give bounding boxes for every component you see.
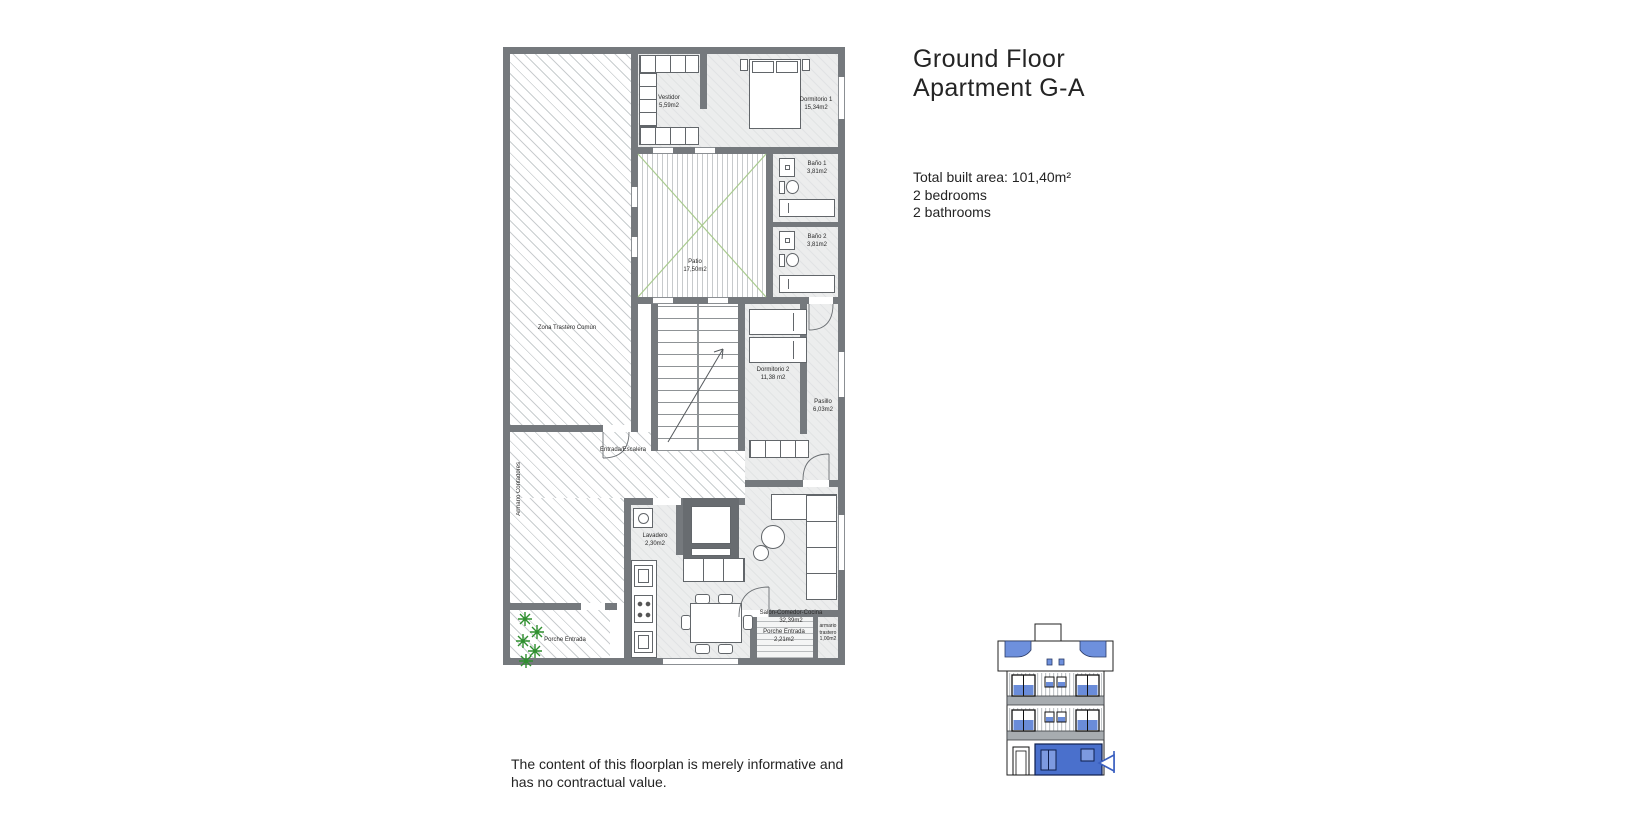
stairs-rail [697, 304, 699, 451]
sink-basin [785, 165, 790, 170]
kitchen-sink-basin [638, 569, 649, 583]
sofa-icon [771, 494, 807, 520]
wall [503, 47, 510, 665]
room-label-porche-der: Porche Entrada2,21m2 [763, 629, 805, 645]
room-label-pasillo: Pasillo6,03m2 [813, 399, 833, 415]
window [631, 237, 638, 257]
page-title: Ground Floor Apartment G-A [913, 45, 1085, 103]
pillow-icon [752, 61, 774, 73]
title-line-1: Ground Floor [913, 45, 1085, 74]
window [663, 658, 738, 665]
sink-basin [785, 238, 790, 243]
toilet-tank-icon [779, 254, 785, 267]
stove-icon [634, 595, 653, 623]
apartment-specs: Total built area: 101,40m² 2 bedrooms 2 … [913, 169, 1071, 222]
door-opening [603, 425, 631, 432]
room-label-lavadero: Lavadero2,30m2 [642, 533, 667, 549]
wall [738, 304, 745, 451]
elevation-floor-1 [1007, 708, 1104, 740]
nightstand-icon [802, 59, 810, 71]
elevator-cab [691, 506, 731, 544]
bathtub-icon [779, 199, 835, 217]
toilet-icon [786, 180, 799, 194]
bed-pillow [753, 341, 794, 359]
window [838, 352, 845, 397]
wall [700, 54, 707, 109]
zone-trastero-comun [510, 54, 631, 425]
room-label-armario-contadores: Armario Contadores [516, 462, 522, 516]
disclaimer-line-2: has no contractual value. [511, 773, 843, 791]
wall [773, 222, 845, 227]
wardrobe-icon [639, 55, 699, 73]
sink-icon [779, 231, 795, 250]
window [838, 515, 845, 570]
wall [651, 304, 658, 451]
elevation-ground-floor-highlight [1013, 744, 1102, 775]
title-line-2: Apartment G-A [913, 74, 1085, 103]
floorplan-page: { "header": { "title": ["Ground Floor", … [0, 0, 1638, 840]
window [653, 297, 673, 304]
kitchen-sink-icon [634, 565, 653, 587]
wardrobe-icon [749, 440, 809, 458]
wall [766, 154, 773, 304]
dining-table-icon [690, 603, 742, 643]
room-label-armario-trastero: armario trastero1,00m2 [816, 623, 840, 643]
wardrobe-icon [639, 127, 699, 145]
chair-icon [743, 615, 753, 630]
wall [676, 505, 683, 555]
sink-icon [779, 158, 795, 177]
chair-icon [695, 644, 710, 654]
door-opening [653, 498, 681, 505]
window [695, 147, 715, 154]
nightstand-icon [740, 59, 748, 71]
window [838, 77, 845, 119]
room-label-dormitorio-2: Dormitorio 211,38 m2 [757, 367, 790, 383]
room-label-bano-2: Baño 23,81m2 [807, 234, 827, 250]
room-label-patio: Patio17,50m2 [683, 259, 706, 275]
bathtub-inner [788, 203, 831, 213]
toilet-icon [786, 253, 799, 267]
room-label-porche-izq: Porche Entrada [544, 637, 586, 645]
window [631, 187, 638, 207]
room-label-vestidor: Vestidor5,59m2 [658, 95, 680, 111]
washing-machine-icon [633, 508, 653, 528]
door-opening [803, 480, 829, 487]
patio-surface [638, 154, 766, 297]
oven-door [638, 635, 649, 649]
floorplan-drawing: Vestidor5,59m2 Dormitorio 115,34m2 Baño … [503, 47, 845, 672]
wardrobe-icon [639, 73, 657, 127]
room-label-entrada: Entrada/Escalera [600, 447, 646, 455]
oven-icon [634, 631, 653, 653]
door-opening [581, 603, 605, 610]
wall [624, 505, 631, 658]
window [653, 147, 673, 154]
toilet-tank-icon [779, 181, 785, 194]
spec-bedrooms: 2 bedrooms [913, 187, 1071, 205]
bathtub-inner [788, 279, 831, 289]
spec-total-area: Total built area: 101,40m² [913, 169, 1071, 187]
bathtub-icon [779, 275, 835, 293]
pillow-icon [776, 61, 798, 73]
single-bed-icon [749, 337, 807, 363]
window [708, 297, 728, 304]
disclaimer-text: The content of this floorplan is merely … [511, 755, 843, 791]
elevation-floor-2 [1007, 673, 1104, 705]
wall [503, 47, 845, 54]
bed-pillow [753, 313, 794, 331]
disclaimer-line-1: The content of this floorplan is merely … [511, 755, 843, 773]
spec-bathrooms: 2 bathrooms [913, 204, 1071, 222]
sofa-icon [806, 494, 837, 600]
coffee-table-icon [753, 545, 769, 561]
kitchen-island [683, 558, 745, 582]
building-elevation-icon [993, 623, 1118, 778]
room-label-bano-1: Baño 13,81m2 [807, 161, 827, 177]
room-label-dormitorio-1: Dormitorio 115,34m2 [800, 97, 833, 113]
washing-machine-drum [638, 513, 649, 524]
single-bed-icon [749, 309, 807, 335]
room-label-salon: Salón-Comedor-Cocina32,39m2 [760, 610, 823, 626]
room-label-zona-trastero: Zona Trastero Común [538, 325, 596, 333]
door-opening [809, 297, 833, 304]
chair-icon [718, 644, 733, 654]
zone-left-corridor [510, 498, 624, 603]
wall [745, 480, 845, 487]
zone-porche-izq [510, 610, 610, 658]
elevator-doors [691, 548, 731, 556]
